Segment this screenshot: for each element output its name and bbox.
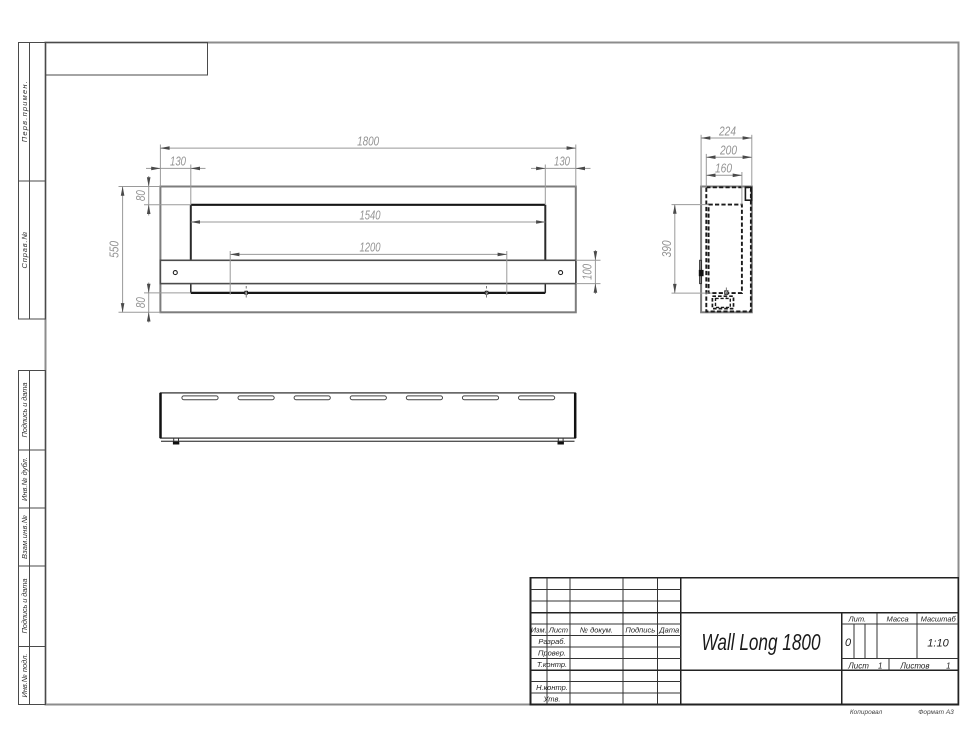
svg-text:Подпись: Подпись	[625, 625, 655, 634]
svg-text:200: 200	[719, 143, 737, 158]
svg-text:Провер.: Провер.	[538, 649, 566, 658]
svg-text:Инв.№ дубл.: Инв.№ дубл.	[20, 457, 29, 501]
svg-text:0: 0	[845, 637, 852, 649]
svg-text:Лист: Лист	[548, 625, 568, 634]
svg-text:1: 1	[878, 662, 882, 671]
svg-text:Лит.: Лит.	[848, 615, 867, 624]
svg-text:390: 390	[659, 240, 674, 258]
svg-text:1: 1	[946, 662, 950, 671]
svg-text:Копировал: Копировал	[850, 709, 883, 716]
svg-text:Масса: Масса	[887, 615, 909, 624]
svg-text:Перв.примен.: Перв.примен.	[20, 81, 29, 142]
svg-text:Утв.: Утв.	[542, 695, 560, 704]
svg-text:Н.контр.: Н.контр.	[536, 683, 568, 692]
svg-text:1200: 1200	[360, 239, 382, 254]
svg-text:80: 80	[133, 190, 148, 202]
svg-text:550: 550	[107, 240, 122, 258]
svg-text:1:10: 1:10	[927, 638, 949, 650]
svg-text:Подпись и дата: Подпись и дата	[20, 383, 29, 438]
svg-text:80: 80	[133, 297, 148, 309]
svg-text:№ докум.: № докум.	[580, 625, 613, 634]
svg-text:Справ.№: Справ.№	[20, 232, 29, 269]
svg-text:Инв.№ подл.: Инв.№ подл.	[20, 654, 29, 698]
svg-text:Разраб.: Разраб.	[538, 637, 565, 646]
svg-text:Подпись и дата: Подпись и дата	[20, 579, 29, 634]
svg-text:Лист: Лист	[847, 662, 869, 671]
svg-text:Дата: Дата	[658, 625, 679, 634]
svg-text:160: 160	[715, 161, 733, 176]
svg-text:Взам.инв.№: Взам.инв.№	[20, 515, 29, 559]
svg-text:100: 100	[580, 263, 595, 280]
svg-text:130: 130	[554, 154, 571, 169]
svg-text:Т.контр.: Т.контр.	[537, 660, 567, 669]
svg-text:Масштаб: Масштаб	[921, 615, 957, 624]
svg-text:130: 130	[170, 154, 187, 169]
svg-text:Wall Long 1800: Wall Long 1800	[702, 629, 821, 655]
svg-text:Формат А3: Формат А3	[918, 709, 954, 716]
svg-text:1800: 1800	[357, 134, 380, 149]
svg-text:Листов: Листов	[899, 662, 929, 671]
svg-text:224: 224	[718, 123, 736, 138]
svg-text:1540: 1540	[360, 207, 382, 222]
svg-text:Изм.: Изм.	[531, 625, 547, 634]
